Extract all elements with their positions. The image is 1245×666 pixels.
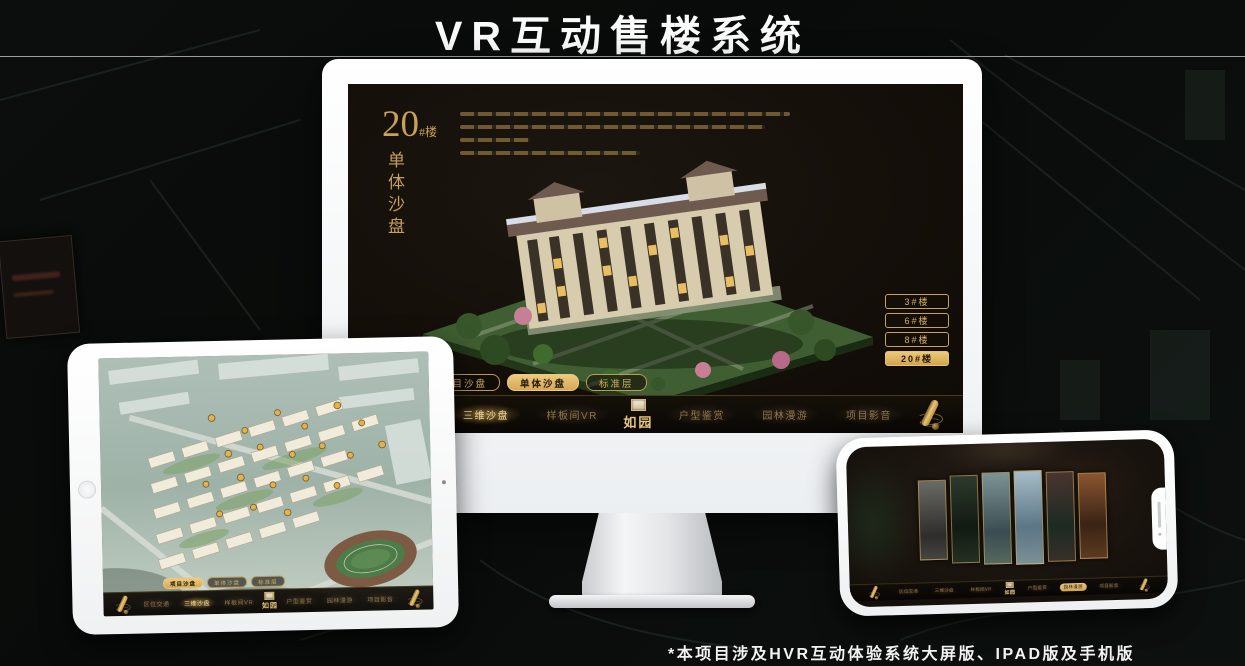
gallery-panel[interactable] bbox=[918, 480, 948, 561]
scroll-icon[interactable] bbox=[114, 594, 131, 614]
nav-item-garden-roam[interactable]: 园林漫游 bbox=[750, 404, 820, 425]
monitor-stand bbox=[582, 513, 722, 601]
building-button-6[interactable]: 6#楼 bbox=[885, 313, 949, 328]
background-award-plaque bbox=[0, 235, 80, 339]
nav-item-garden-roam[interactable]: 园林漫游 bbox=[321, 593, 359, 607]
home-button[interactable] bbox=[78, 480, 96, 498]
building-button-8[interactable]: 8#楼 bbox=[885, 332, 949, 347]
description-line bbox=[460, 125, 765, 129]
nav-item-3d-sandbox[interactable]: 三维沙盘 bbox=[178, 596, 216, 610]
gallery-panel[interactable] bbox=[1014, 470, 1045, 565]
nav-item-location[interactable]: 区位交通 bbox=[895, 587, 922, 596]
seal-icon bbox=[1006, 582, 1014, 588]
scroll-icon[interactable] bbox=[1138, 578, 1150, 593]
panorama-gallery bbox=[919, 468, 1108, 567]
page-title: VR互动售楼系统 bbox=[0, 2, 1245, 62]
building-number-suffix: #楼 bbox=[419, 125, 437, 139]
nav-item-showroom-vr[interactable]: 样板间VR bbox=[535, 404, 610, 425]
building-render bbox=[403, 154, 893, 404]
subtab-single-sandbox[interactable]: 单体沙盘 bbox=[207, 576, 247, 588]
speaker-icon bbox=[1157, 502, 1160, 528]
brand-logo[interactable]: 如园 bbox=[262, 592, 278, 611]
tablet-screen: 项目沙盘 单体沙盘 标准层 区位交通 三维沙盘 样板间VR 如园 户型鉴赏 园林… bbox=[98, 352, 433, 617]
camera-icon bbox=[1158, 533, 1161, 536]
footnote: *本项目涉及HVR互动体验系统大屏版、IPAD版及手机版 bbox=[668, 640, 1135, 664]
tablet-device: 项目沙盘 单体沙盘 标准层 区位交通 三维沙盘 样板间VR 如园 户型鉴赏 园林… bbox=[67, 336, 459, 635]
tablet-camera-icon bbox=[442, 480, 446, 484]
building-button-20[interactable]: 20#楼 bbox=[885, 351, 949, 366]
stage: VR互动售楼系统 20#楼 单体沙盘 bbox=[0, 0, 1245, 666]
phone-notch bbox=[1151, 488, 1168, 550]
nav-item-floorplans[interactable]: 户型鉴赏 bbox=[280, 594, 318, 608]
tablet-overlay: 项目沙盘 单体沙盘 标准层 区位交通 三维沙盘 样板间VR 如园 户型鉴赏 园林… bbox=[104, 609, 434, 616]
gallery-panel[interactable] bbox=[950, 475, 980, 564]
nav-item-project-media[interactable]: 项目影音 bbox=[361, 592, 399, 606]
nav-item-showroom-vr[interactable]: 样板间VR bbox=[218, 595, 259, 609]
nav-item-floorplans[interactable]: 户型鉴赏 bbox=[667, 404, 737, 425]
phone-screen: 区位交通 三维沙盘 样板间VR 如园 户型鉴赏 园林漫游 项目影音 bbox=[846, 439, 1168, 608]
phone-device: 区位交通 三维沙盘 样板间VR 如园 户型鉴赏 园林漫游 项目影音 bbox=[836, 429, 1179, 616]
scroll-icon[interactable] bbox=[867, 585, 879, 600]
sandbox-subtabs: 项目沙盘 单体沙盘 标准层 bbox=[428, 374, 647, 391]
brand-logo[interactable]: 如园 bbox=[623, 399, 653, 431]
subtab-standard-floor[interactable]: 标准层 bbox=[251, 576, 285, 588]
nav-item-location[interactable]: 区位交通 bbox=[137, 597, 175, 611]
subtab-project-sandbox[interactable]: 项目沙盘 bbox=[163, 577, 203, 589]
building-button-3[interactable]: 3#楼 bbox=[885, 294, 949, 309]
title-divider bbox=[0, 56, 1245, 57]
nav-item-3d-sandbox[interactable]: 三维沙盘 bbox=[451, 404, 521, 425]
nav-item-project-media[interactable]: 项目影音 bbox=[1095, 582, 1122, 591]
gallery-panel[interactable] bbox=[982, 472, 1013, 565]
building-selector: 3#楼 6#楼 8#楼 20#楼 bbox=[885, 294, 949, 366]
gallery-panel[interactable] bbox=[1046, 471, 1077, 562]
phone-nav-bar: 区位交通 三维沙盘 样板间VR 如园 户型鉴赏 园林漫游 项目影音 bbox=[850, 576, 1168, 602]
brand-logo[interactable]: 如园 bbox=[1004, 582, 1015, 596]
plant-silhouette bbox=[846, 456, 920, 588]
nav-item-garden-roam[interactable]: 园林漫游 bbox=[1060, 583, 1087, 592]
nav-item-showroom-vr[interactable]: 样板间VR bbox=[966, 585, 995, 594]
nav-item-3d-sandbox[interactable]: 三维沙盘 bbox=[931, 586, 958, 595]
scroll-icon[interactable] bbox=[917, 399, 943, 431]
description-line bbox=[460, 138, 530, 142]
nav-item-floorplans[interactable]: 户型鉴赏 bbox=[1024, 584, 1051, 593]
building-number: 20 bbox=[382, 104, 419, 145]
seal-icon bbox=[631, 399, 646, 411]
nav-item-project-media[interactable]: 项目影音 bbox=[834, 404, 904, 425]
seal-icon bbox=[265, 592, 275, 600]
subtab-standard-floor[interactable]: 标准层 bbox=[586, 374, 647, 391]
description-line bbox=[460, 112, 790, 116]
subtab-single-sandbox[interactable]: 单体沙盘 bbox=[507, 374, 579, 391]
monitor-base bbox=[549, 595, 755, 608]
scroll-icon[interactable] bbox=[407, 588, 424, 608]
gallery-panel[interactable] bbox=[1078, 472, 1108, 559]
